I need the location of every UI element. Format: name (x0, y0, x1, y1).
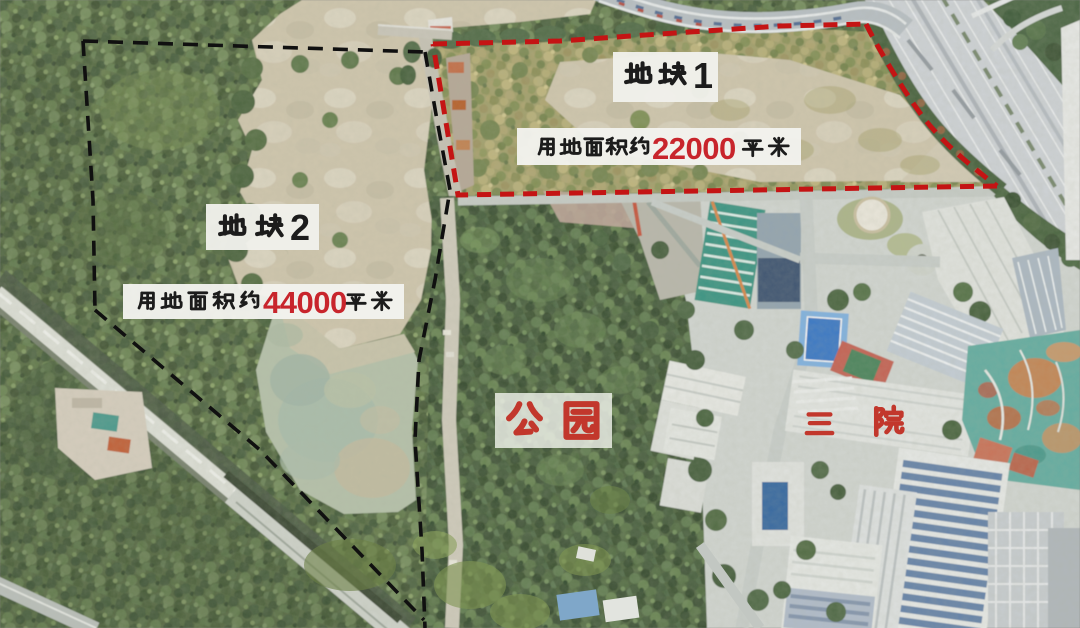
svg-text:1: 1 (693, 55, 713, 96)
svg-text:2: 2 (290, 207, 310, 248)
svg-text:44000: 44000 (263, 285, 347, 320)
svg-text:22000: 22000 (652, 131, 736, 166)
